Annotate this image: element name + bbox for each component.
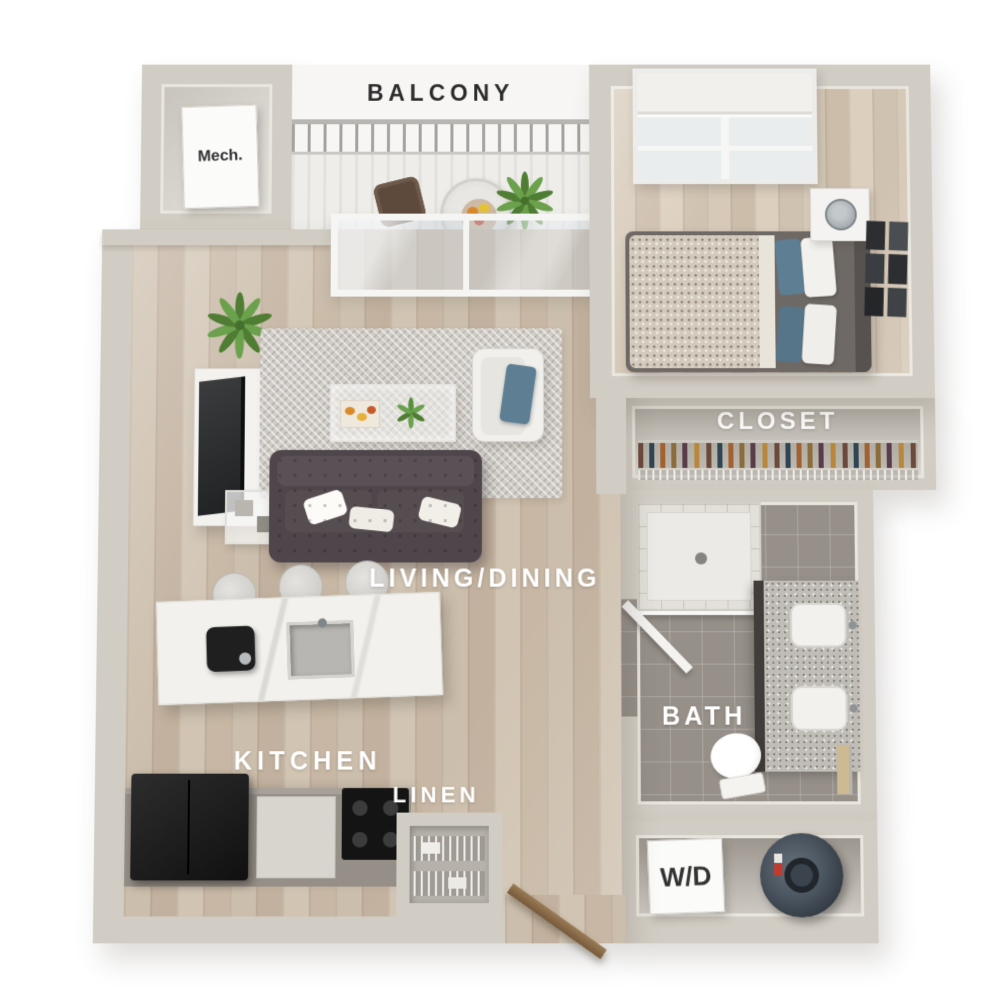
washer-dryer-label: W/D [660, 859, 713, 893]
bedroom-window [633, 69, 818, 185]
linen-shelf [414, 836, 485, 861]
coffee-maker-dial [239, 652, 251, 665]
floorplan: Mech. BALCONY [0, 6, 1000, 1000]
room-washer-dryer: W/D [622, 821, 879, 944]
room-bedroom [589, 65, 935, 398]
water-heater-sticker-white [774, 854, 782, 863]
room-balcony: BALCONY [279, 65, 589, 232]
sink [790, 603, 847, 648]
bed-pillow-white [800, 236, 837, 297]
wall-stub [596, 394, 626, 494]
pastry [367, 406, 376, 414]
bath-vanity [754, 581, 861, 772]
sofa-pillow [348, 506, 394, 533]
room-bath: BATH [620, 490, 877, 821]
water-heater-sticker-red [774, 864, 782, 875]
shower [636, 502, 761, 611]
bed-sheet [759, 235, 776, 368]
island-sink [287, 620, 355, 679]
linen-label: LINEN [375, 782, 497, 809]
kitchen-label: KITCHEN [196, 747, 419, 777]
linen-stack [422, 842, 440, 853]
room-living-dining: LIVING/DINING KITCHEN LINEN [93, 229, 622, 943]
glass-reflection [338, 221, 593, 290]
sofa [269, 450, 482, 563]
washer-dryer-unit: W/D [647, 838, 725, 915]
hanging-clothes [638, 440, 918, 468]
wall-art [864, 221, 908, 317]
serving-tray [340, 400, 380, 428]
water-heater-cap [784, 858, 819, 893]
bed-pillow-blue [775, 306, 805, 364]
sink-faucet [850, 704, 858, 712]
kitchen-island [156, 592, 443, 705]
bed-pillow-white [802, 304, 837, 366]
bed-duvet [629, 235, 759, 368]
sofa-back [277, 456, 474, 486]
towel-rack [837, 745, 853, 794]
balcony-label: BALCONY [292, 80, 589, 106]
art-frame [864, 287, 884, 317]
water-heater [760, 833, 844, 917]
window-panes [638, 117, 813, 179]
art-frame [888, 254, 908, 284]
armchair [472, 348, 544, 442]
wall-top-living [102, 229, 331, 245]
base-cabinet [256, 796, 336, 878]
balcony-railing [292, 119, 590, 154]
shower-drain [695, 552, 707, 564]
art-frame [889, 222, 909, 252]
closet-wire-shelf [638, 470, 918, 480]
table-lamp [825, 199, 857, 231]
sink [791, 686, 848, 731]
art-frame [865, 254, 885, 284]
balcony-glass-door [331, 214, 600, 297]
linen-stack [448, 877, 466, 888]
mech-label: Mech. [198, 147, 243, 166]
closet-label: CLOSET [632, 408, 923, 436]
bed [625, 231, 871, 372]
side-table-decor [235, 500, 253, 516]
nightstand [810, 188, 870, 241]
sink-faucet [849, 621, 857, 629]
pastry [357, 413, 367, 421]
table-plant [394, 396, 428, 430]
toilet [703, 728, 777, 805]
art-frame [866, 221, 886, 251]
coffee-maker [206, 626, 256, 672]
island-faucet [318, 618, 327, 627]
living-dining-label: LIVING/DINING [354, 564, 616, 593]
room-closet: CLOSET [620, 396, 936, 490]
art-frame [887, 287, 907, 317]
bath-label: BATH [643, 702, 764, 732]
coffee-table [330, 384, 456, 442]
pastry [345, 407, 355, 415]
floorplan-canvas: Mech. BALCONY [0, 0, 1000, 1000]
refrigerator [130, 774, 249, 881]
fruit-banana [478, 204, 490, 213]
armchair-pillow-blue [499, 363, 537, 424]
refrigerator-door-split [187, 780, 190, 874]
linen-shelf [414, 871, 485, 896]
kitchen-counter [124, 788, 411, 887]
mech-unit: Mech. [181, 104, 259, 209]
room-mech: Mech. [140, 65, 292, 234]
room-linen [396, 813, 502, 917]
window-shade [637, 73, 812, 114]
